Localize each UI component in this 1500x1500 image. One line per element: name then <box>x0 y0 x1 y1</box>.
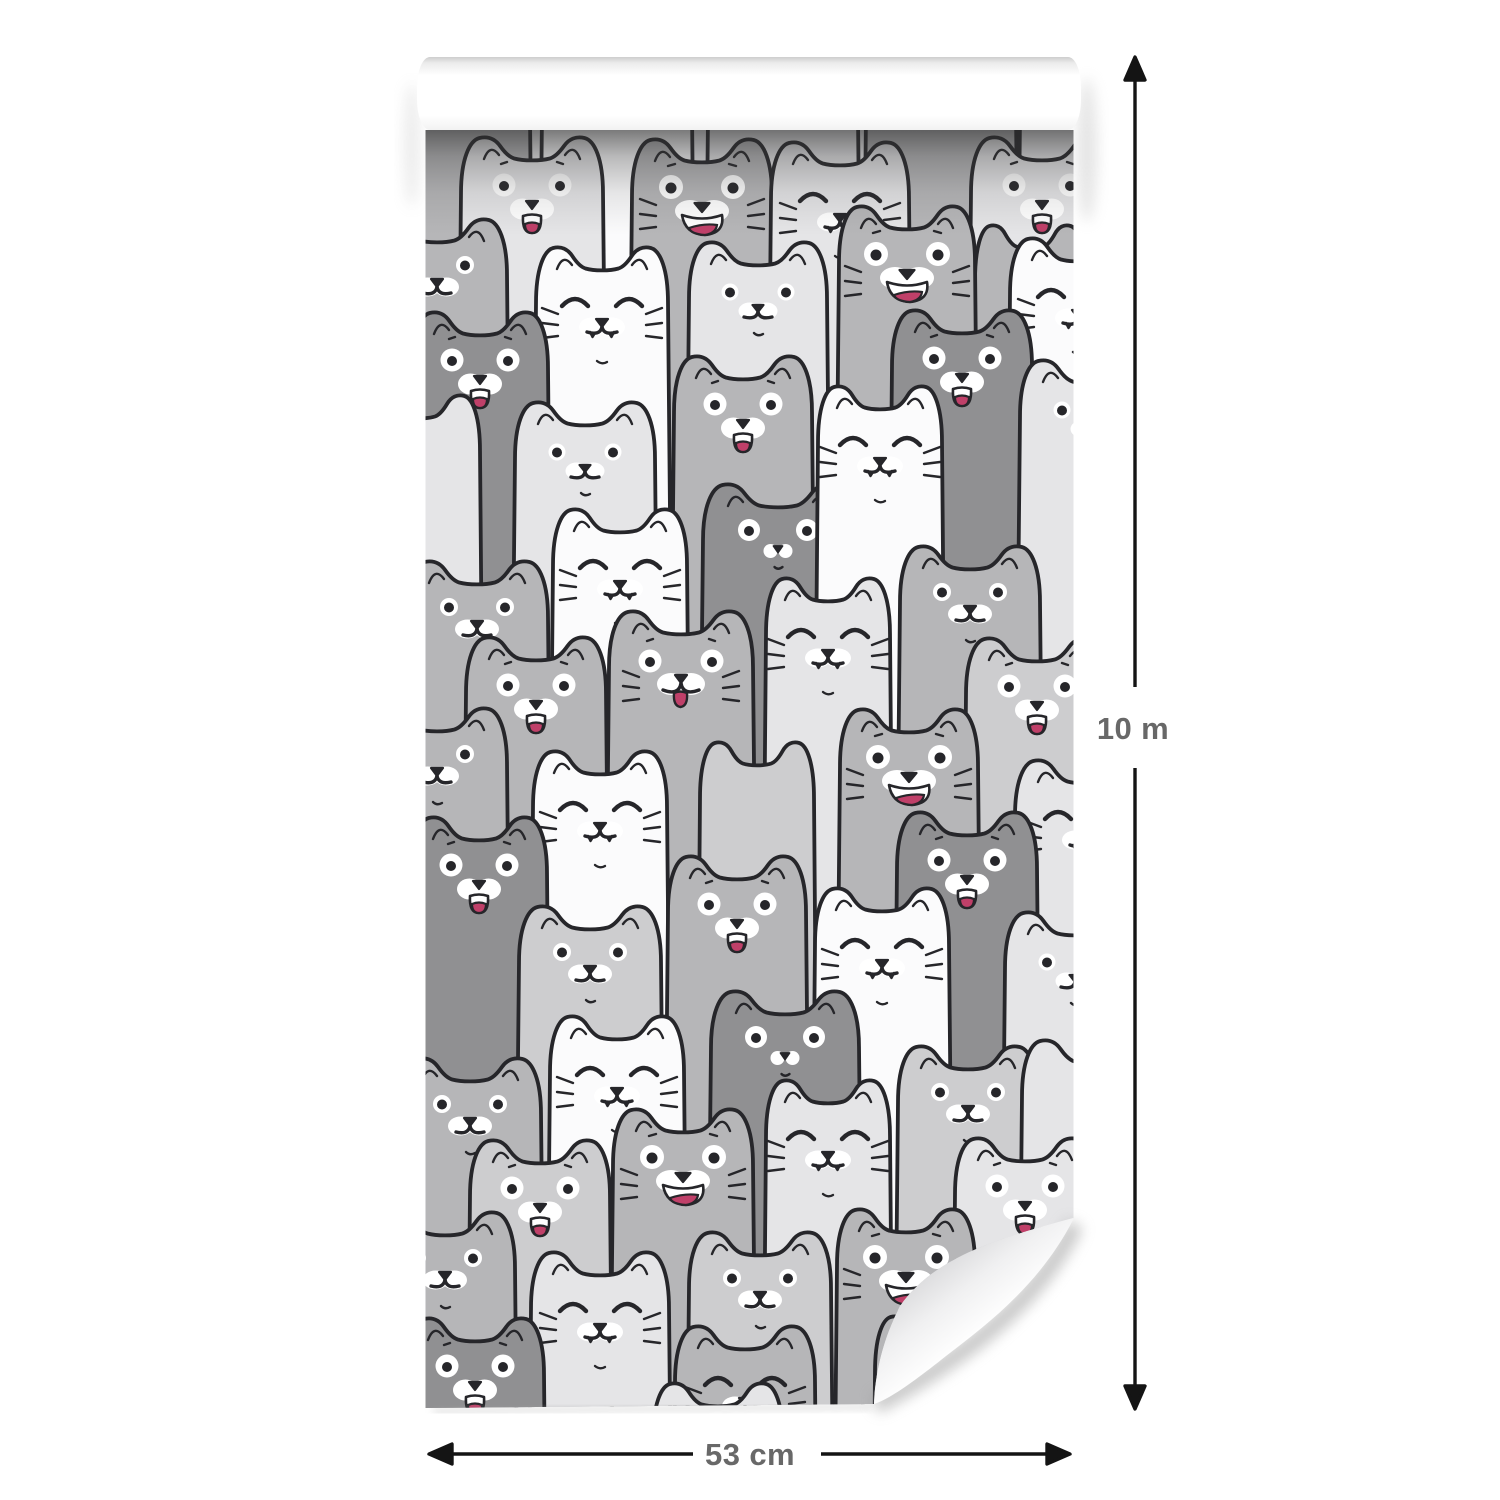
svg-text:10 m: 10 m <box>1097 711 1169 746</box>
svg-text:53 cm: 53 cm <box>705 1437 795 1472</box>
